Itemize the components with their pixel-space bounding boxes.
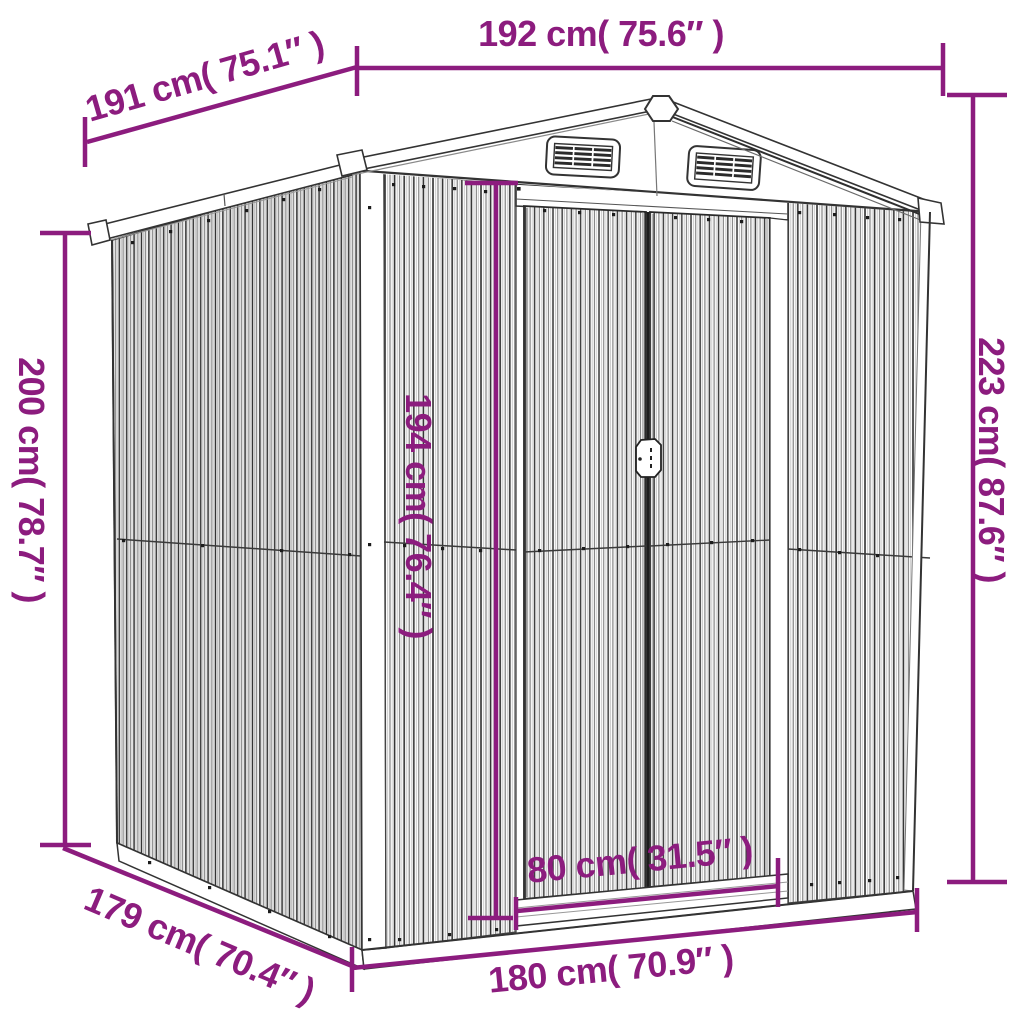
- dim-wall-height: 200 cm( 78.7″ ): [11, 233, 91, 845]
- roof-apex-cap: [645, 96, 678, 121]
- dim-label-roof-width: 192 cm( 75.6″ ): [478, 13, 724, 54]
- door-frame-post: [770, 218, 788, 881]
- door-handle: [636, 439, 661, 477]
- dim-roof-depth: 191 cm( 75.1″ ): [81, 22, 357, 167]
- dim-label-roof-depth: 191 cm( 75.1″ ): [81, 22, 329, 129]
- shed-drawing: [88, 96, 944, 969]
- roof-corner-cap-right: [918, 198, 944, 224]
- shed-dimension-diagram: 192 cm( 75.6″ ) 191 cm( 75.1″ ) 200 cm( …: [0, 0, 1024, 1024]
- roof-eave-cap-back: [88, 220, 110, 245]
- gable-vent-left-icon: [546, 136, 621, 178]
- dim-total-height: 223 cm( 87.6″ ): [947, 95, 1012, 882]
- dim-label-total-height: 223 cm( 87.6″ ): [971, 337, 1012, 583]
- dim-label-wall-height: 200 cm( 78.7″ ): [11, 357, 52, 603]
- door-left: [524, 206, 646, 899]
- corner-trim: [360, 168, 386, 950]
- side-wall: [112, 169, 362, 950]
- dim-roof-width: 192 cm( 75.6″ ): [357, 13, 943, 96]
- dim-label-door-height: 194 cm( 76.4″ ): [398, 393, 439, 639]
- diagram-canvas: 192 cm( 75.6″ ) 191 cm( 75.1″ ) 200 cm( …: [0, 0, 1024, 1024]
- front-wall-right: [788, 201, 930, 903]
- door-right: [650, 212, 770, 887]
